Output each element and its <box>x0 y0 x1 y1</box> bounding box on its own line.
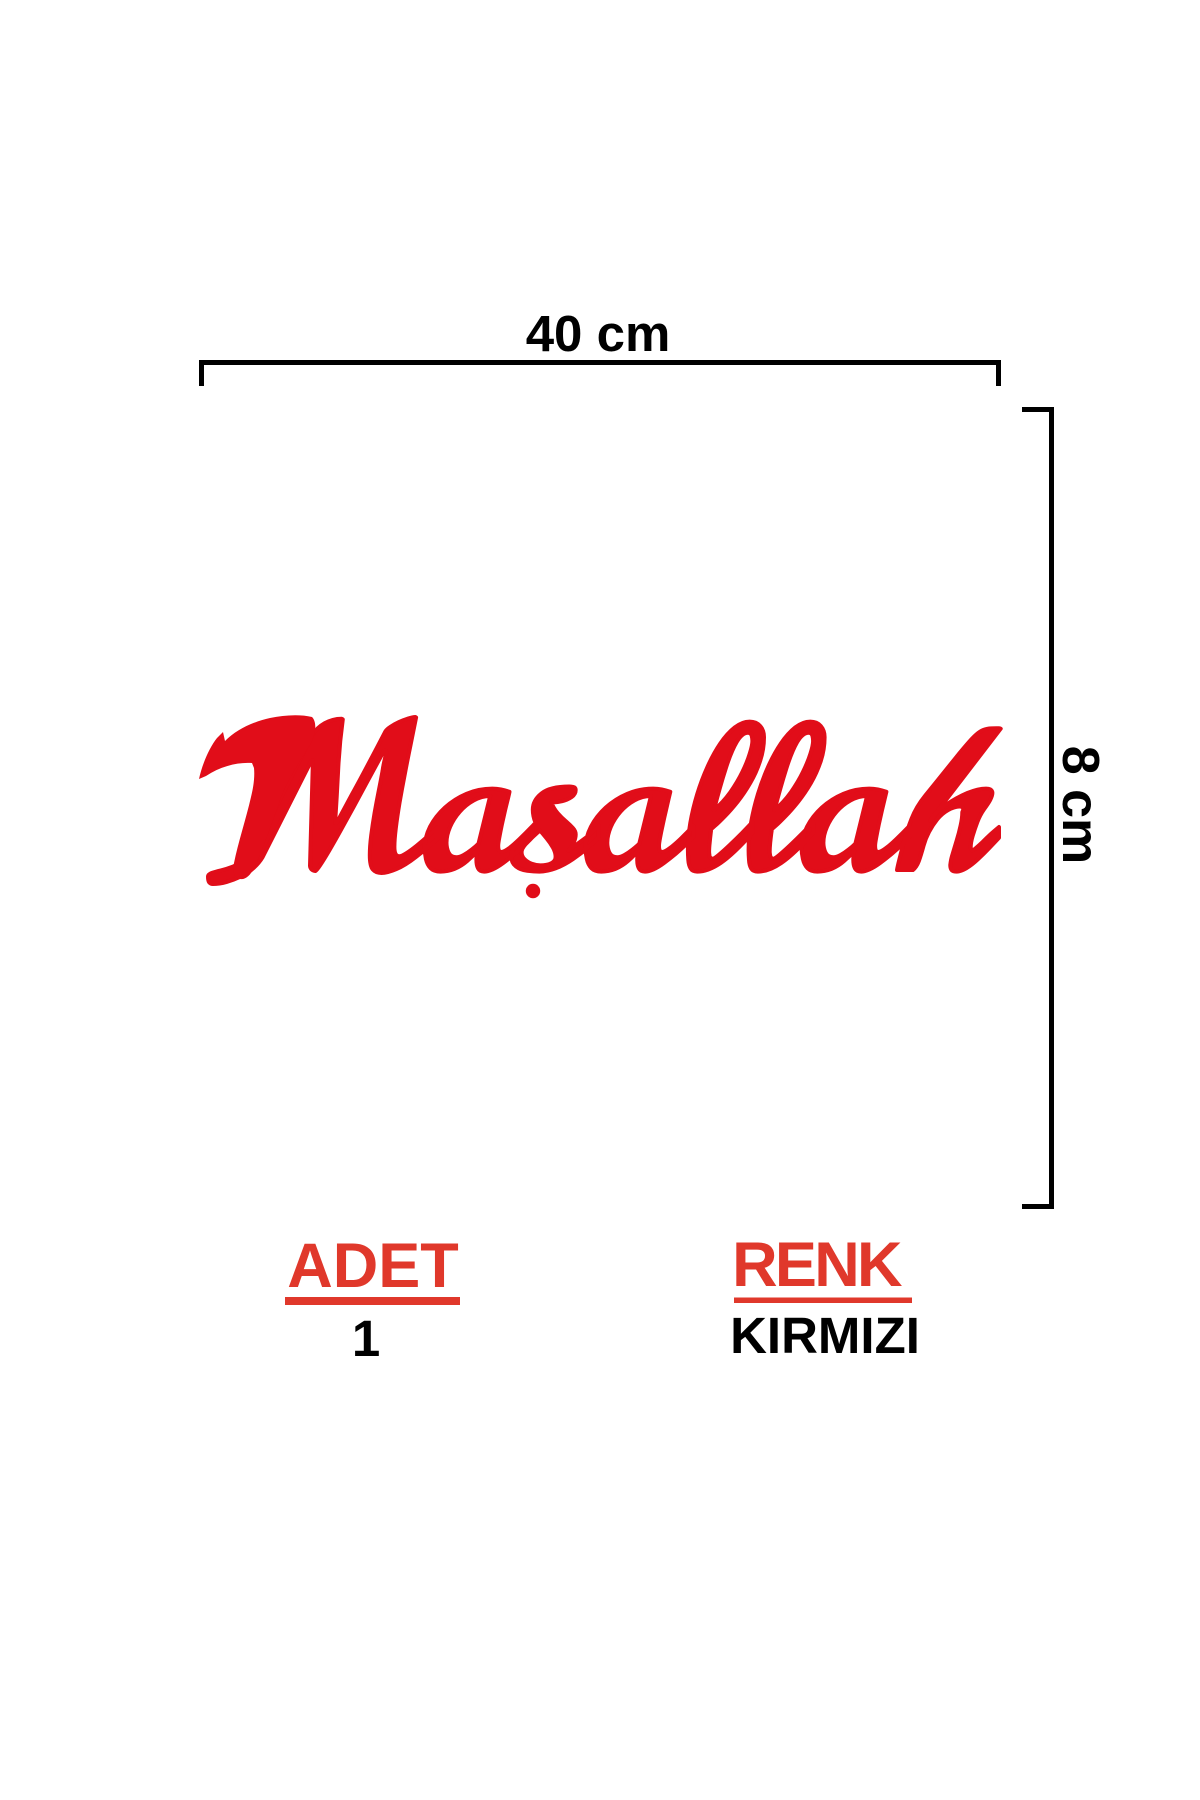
svg-text:40 cm: 40 cm <box>526 305 671 362</box>
svg-text:ADET: ADET <box>287 1231 459 1301</box>
svg-text:KIRMIZI: KIRMIZI <box>730 1307 920 1364</box>
svg-text:RENK: RENK <box>732 1230 902 1300</box>
svg-text:1: 1 <box>352 1310 380 1367</box>
svg-text:8 cm: 8 cm <box>1051 746 1109 865</box>
